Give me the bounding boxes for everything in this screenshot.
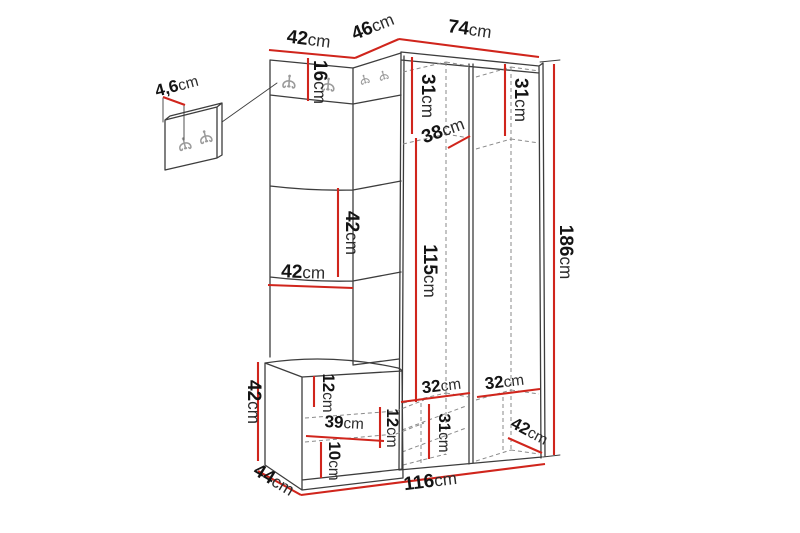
dim-right-top-compartment-label: 31cm: [510, 78, 531, 122]
coat-hook-icon: [359, 74, 369, 85]
coat-hook-icon: [378, 70, 388, 81]
dim-panel-width-label: 42cm: [281, 261, 326, 284]
dim-bench-top-label: 12cm: [319, 373, 338, 412]
dim-bench-inner-height-label: 12cm: [383, 408, 402, 447]
dim-bench-base-label: 10cm: [325, 441, 344, 480]
dim-total-width-label: 116cm: [403, 468, 459, 495]
dim-bench-inner-width-line: [306, 436, 384, 441]
dim-bench-inner-width-label: 39cm: [324, 412, 364, 433]
wall-hook-panel-detail: [165, 83, 277, 170]
corner-section: [353, 53, 401, 365]
coat-hook-icon: [283, 74, 296, 88]
diagram-canvas: 42cm 46cm 74cm 4,6cm 16cm 31cm 31cm 38cm…: [0, 0, 800, 533]
dim-wall-panel-thickness-label: 4,6cm: [153, 71, 200, 101]
dim-top-width-left-line: [269, 50, 355, 58]
dim-bench-height-label: 42cm: [243, 380, 264, 424]
wall-hook-panel-outline: [165, 103, 222, 170]
dim-hanging-space-label: 115cm: [419, 244, 440, 297]
dim-left-top-compartment-label: 31cm: [417, 74, 438, 118]
dim-top-width-corner-label: 46cm: [349, 9, 398, 45]
dim-top-width-left-label: 42cm: [286, 26, 332, 52]
dim-hook-strip-height-label: 16cm: [309, 60, 330, 104]
hook-panel-section: [270, 60, 353, 364]
dim-right-compartment-width-label: 32cm: [484, 370, 525, 394]
dim-bottom-compartment-height-label: 31cm: [435, 413, 454, 452]
dim-panel-segment-label: 42cm: [341, 211, 362, 255]
coat-hook-icon: [198, 129, 212, 144]
dim-panel-width-line: [268, 285, 353, 288]
dimension-diagram: 42cm 46cm 74cm 4,6cm 16cm 31cm 31cm 38cm…: [0, 0, 800, 533]
corner-panel-outline: [353, 53, 401, 365]
dim-top-width-right-label: 74cm: [447, 16, 493, 43]
dim-bench-depth-label: 44cm: [250, 460, 298, 501]
dim-total-height-label: 186cm: [555, 225, 576, 280]
detail-leader-line: [222, 83, 277, 122]
dim-top-compartment-depth-label: 38cm: [419, 113, 467, 148]
hook-panel-outline: [270, 60, 353, 364]
